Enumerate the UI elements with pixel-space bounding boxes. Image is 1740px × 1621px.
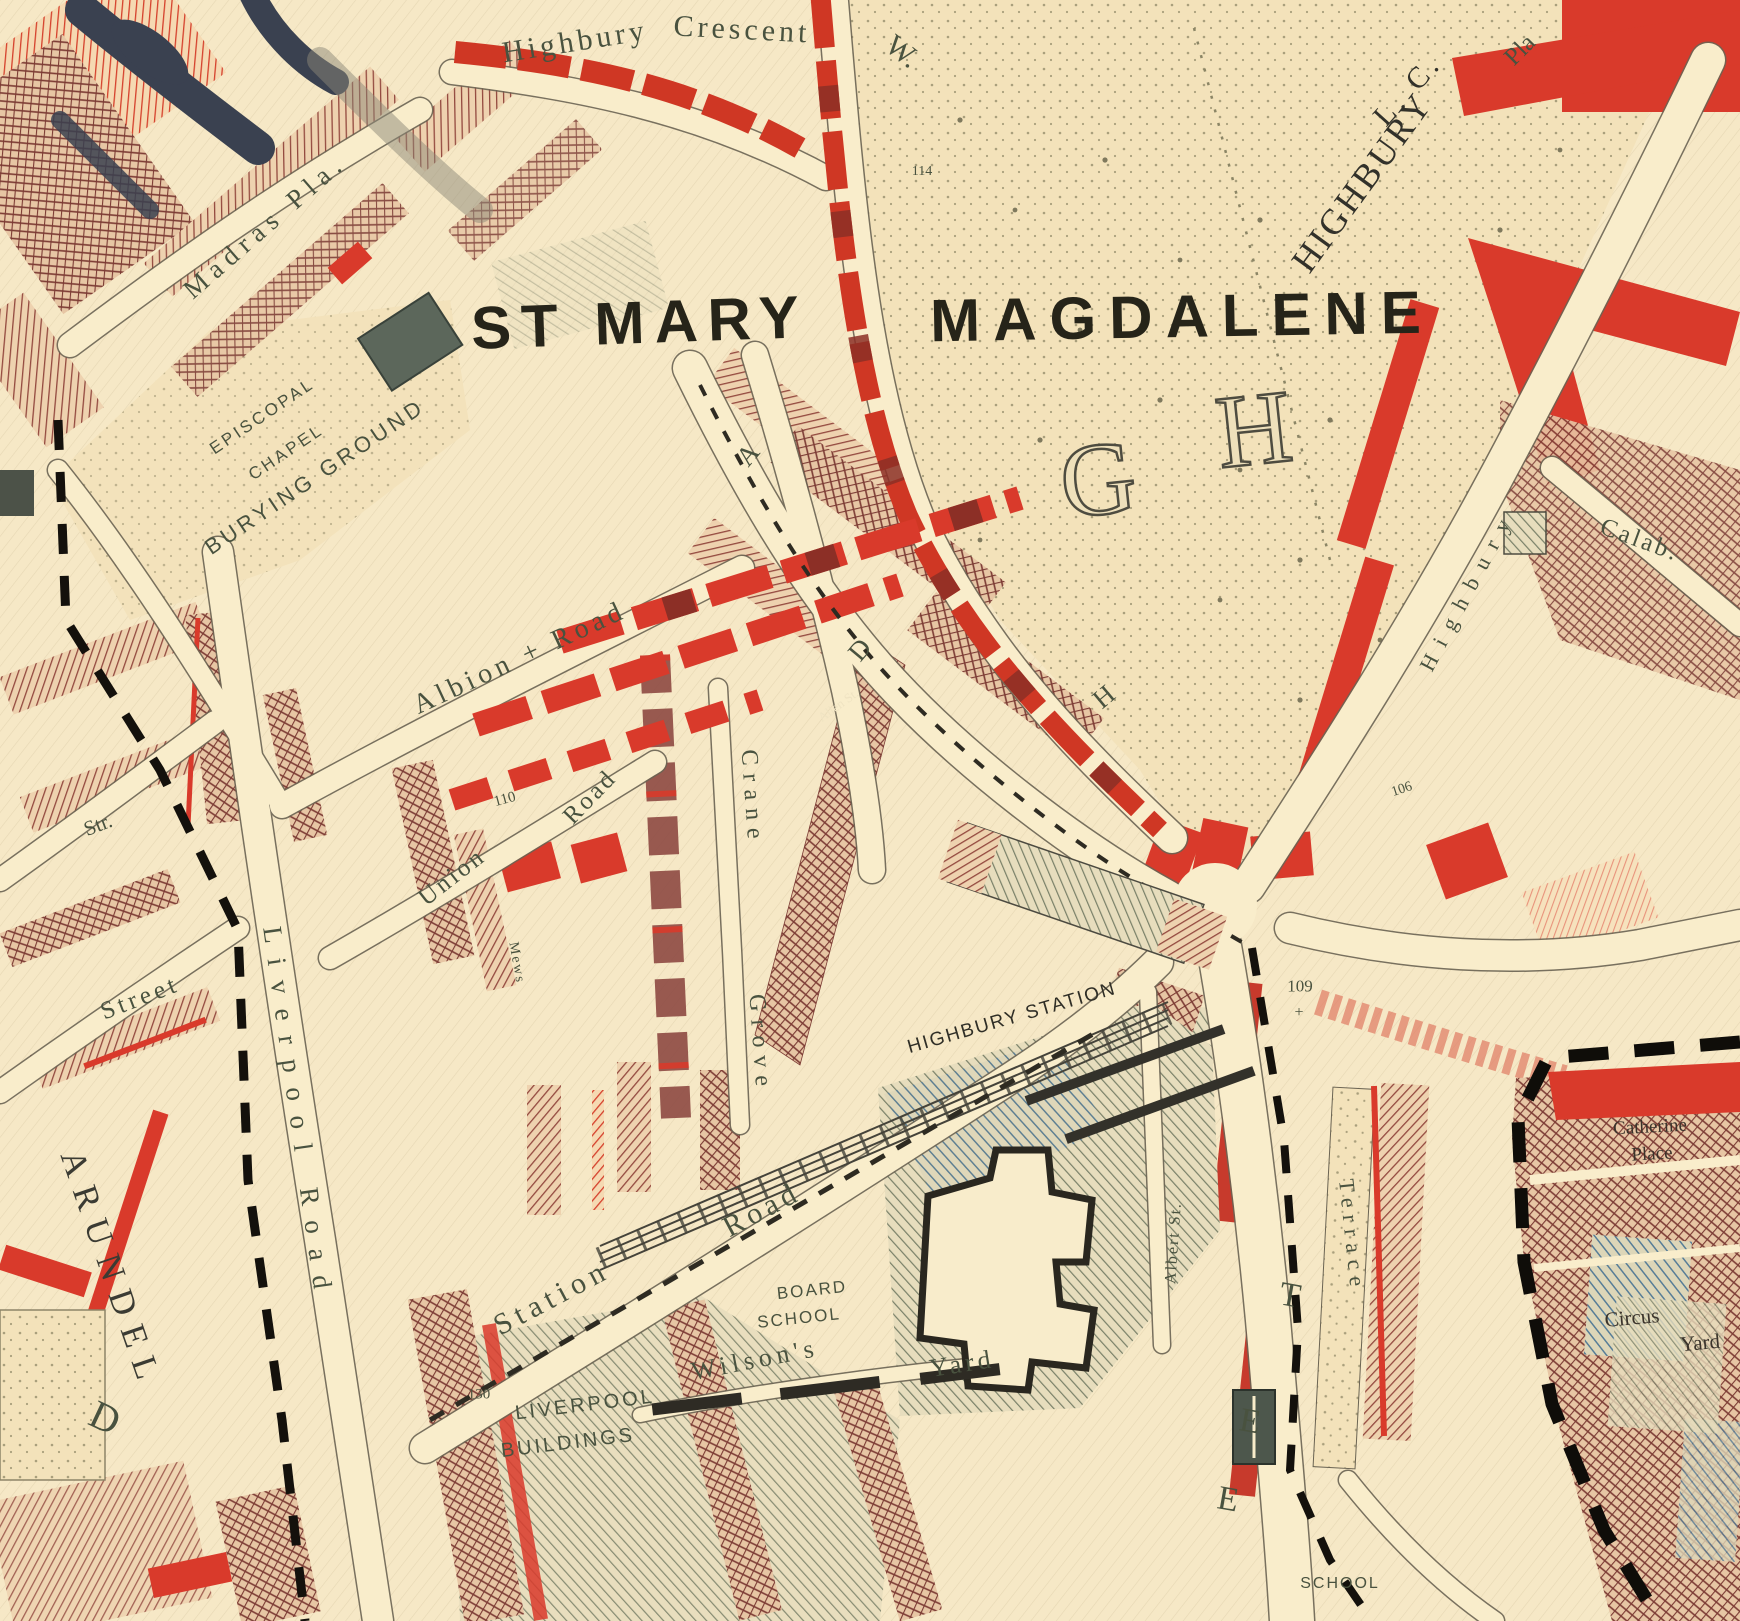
small-building	[0, 470, 34, 516]
historical-map: ST MARY MAGDALENE	[0, 0, 1740, 1621]
map-canvas	[0, 0, 1740, 1621]
